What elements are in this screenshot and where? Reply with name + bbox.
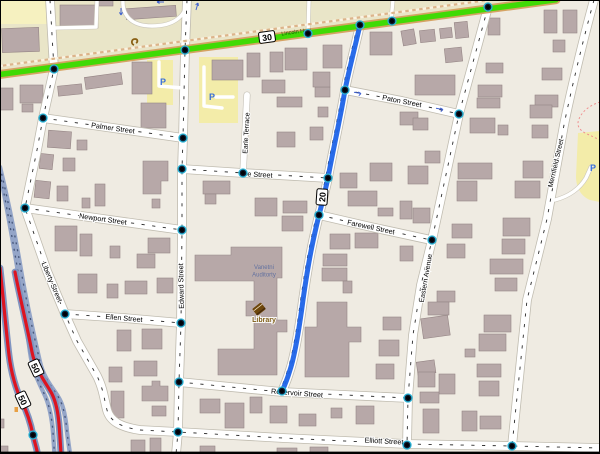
svg-text:20: 20: [317, 192, 328, 203]
svg-text:P: P: [590, 163, 596, 173]
svg-text:P: P: [209, 92, 215, 102]
svg-text:Vanetni: Vanetni: [254, 265, 274, 271]
svg-text:Edward Street: Edward Street: [176, 263, 186, 309]
svg-text:P: P: [160, 77, 166, 87]
svg-text:e Street: e Street: [247, 169, 273, 180]
svg-text:Library: Library: [252, 317, 276, 324]
svg-text:30: 30: [262, 32, 273, 43]
svg-text:Auditorty: Auditorty: [252, 273, 276, 279]
